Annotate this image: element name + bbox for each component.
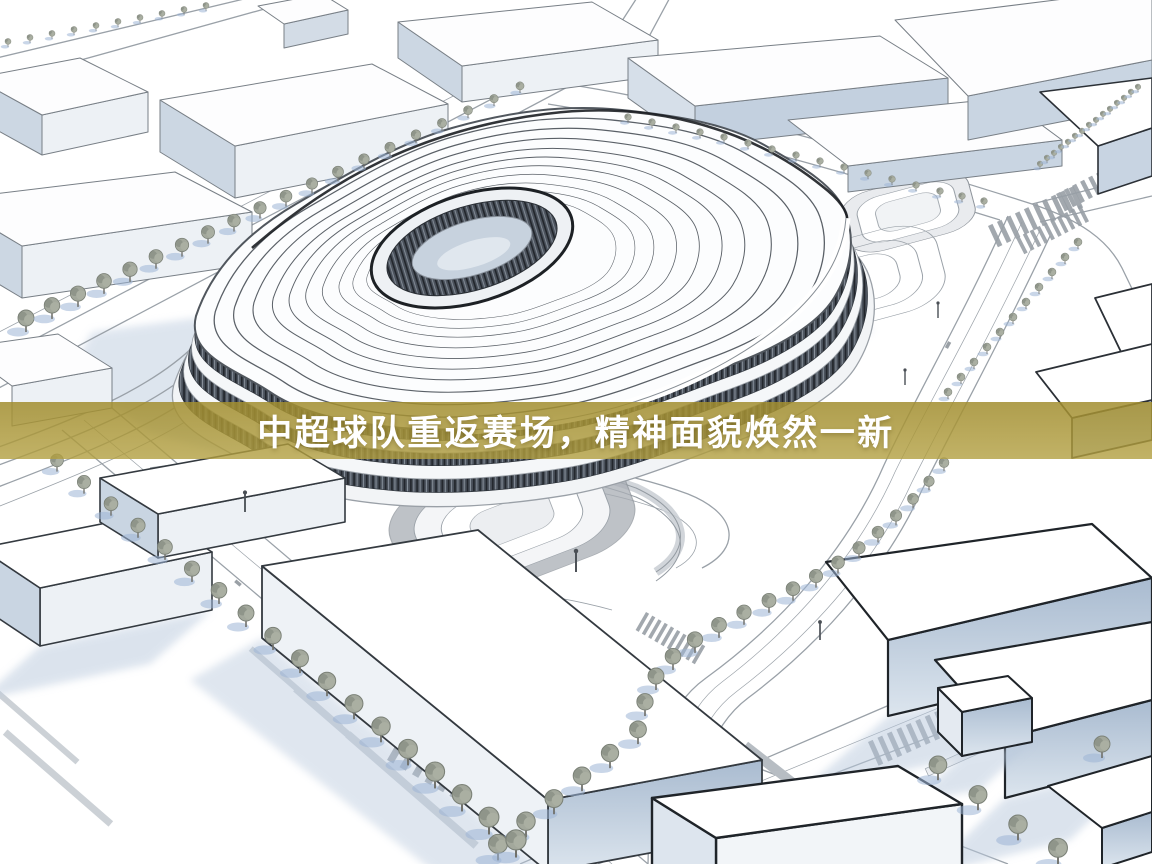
headline-banner: 中超球队重返赛场，精神面貌焕然一新 bbox=[0, 402, 1152, 459]
headline-text: 中超球队重返赛场，精神面貌焕然一新 bbox=[257, 405, 895, 456]
page: 中超球队重返赛场，精神面貌焕然一新 bbox=[0, 0, 1152, 864]
